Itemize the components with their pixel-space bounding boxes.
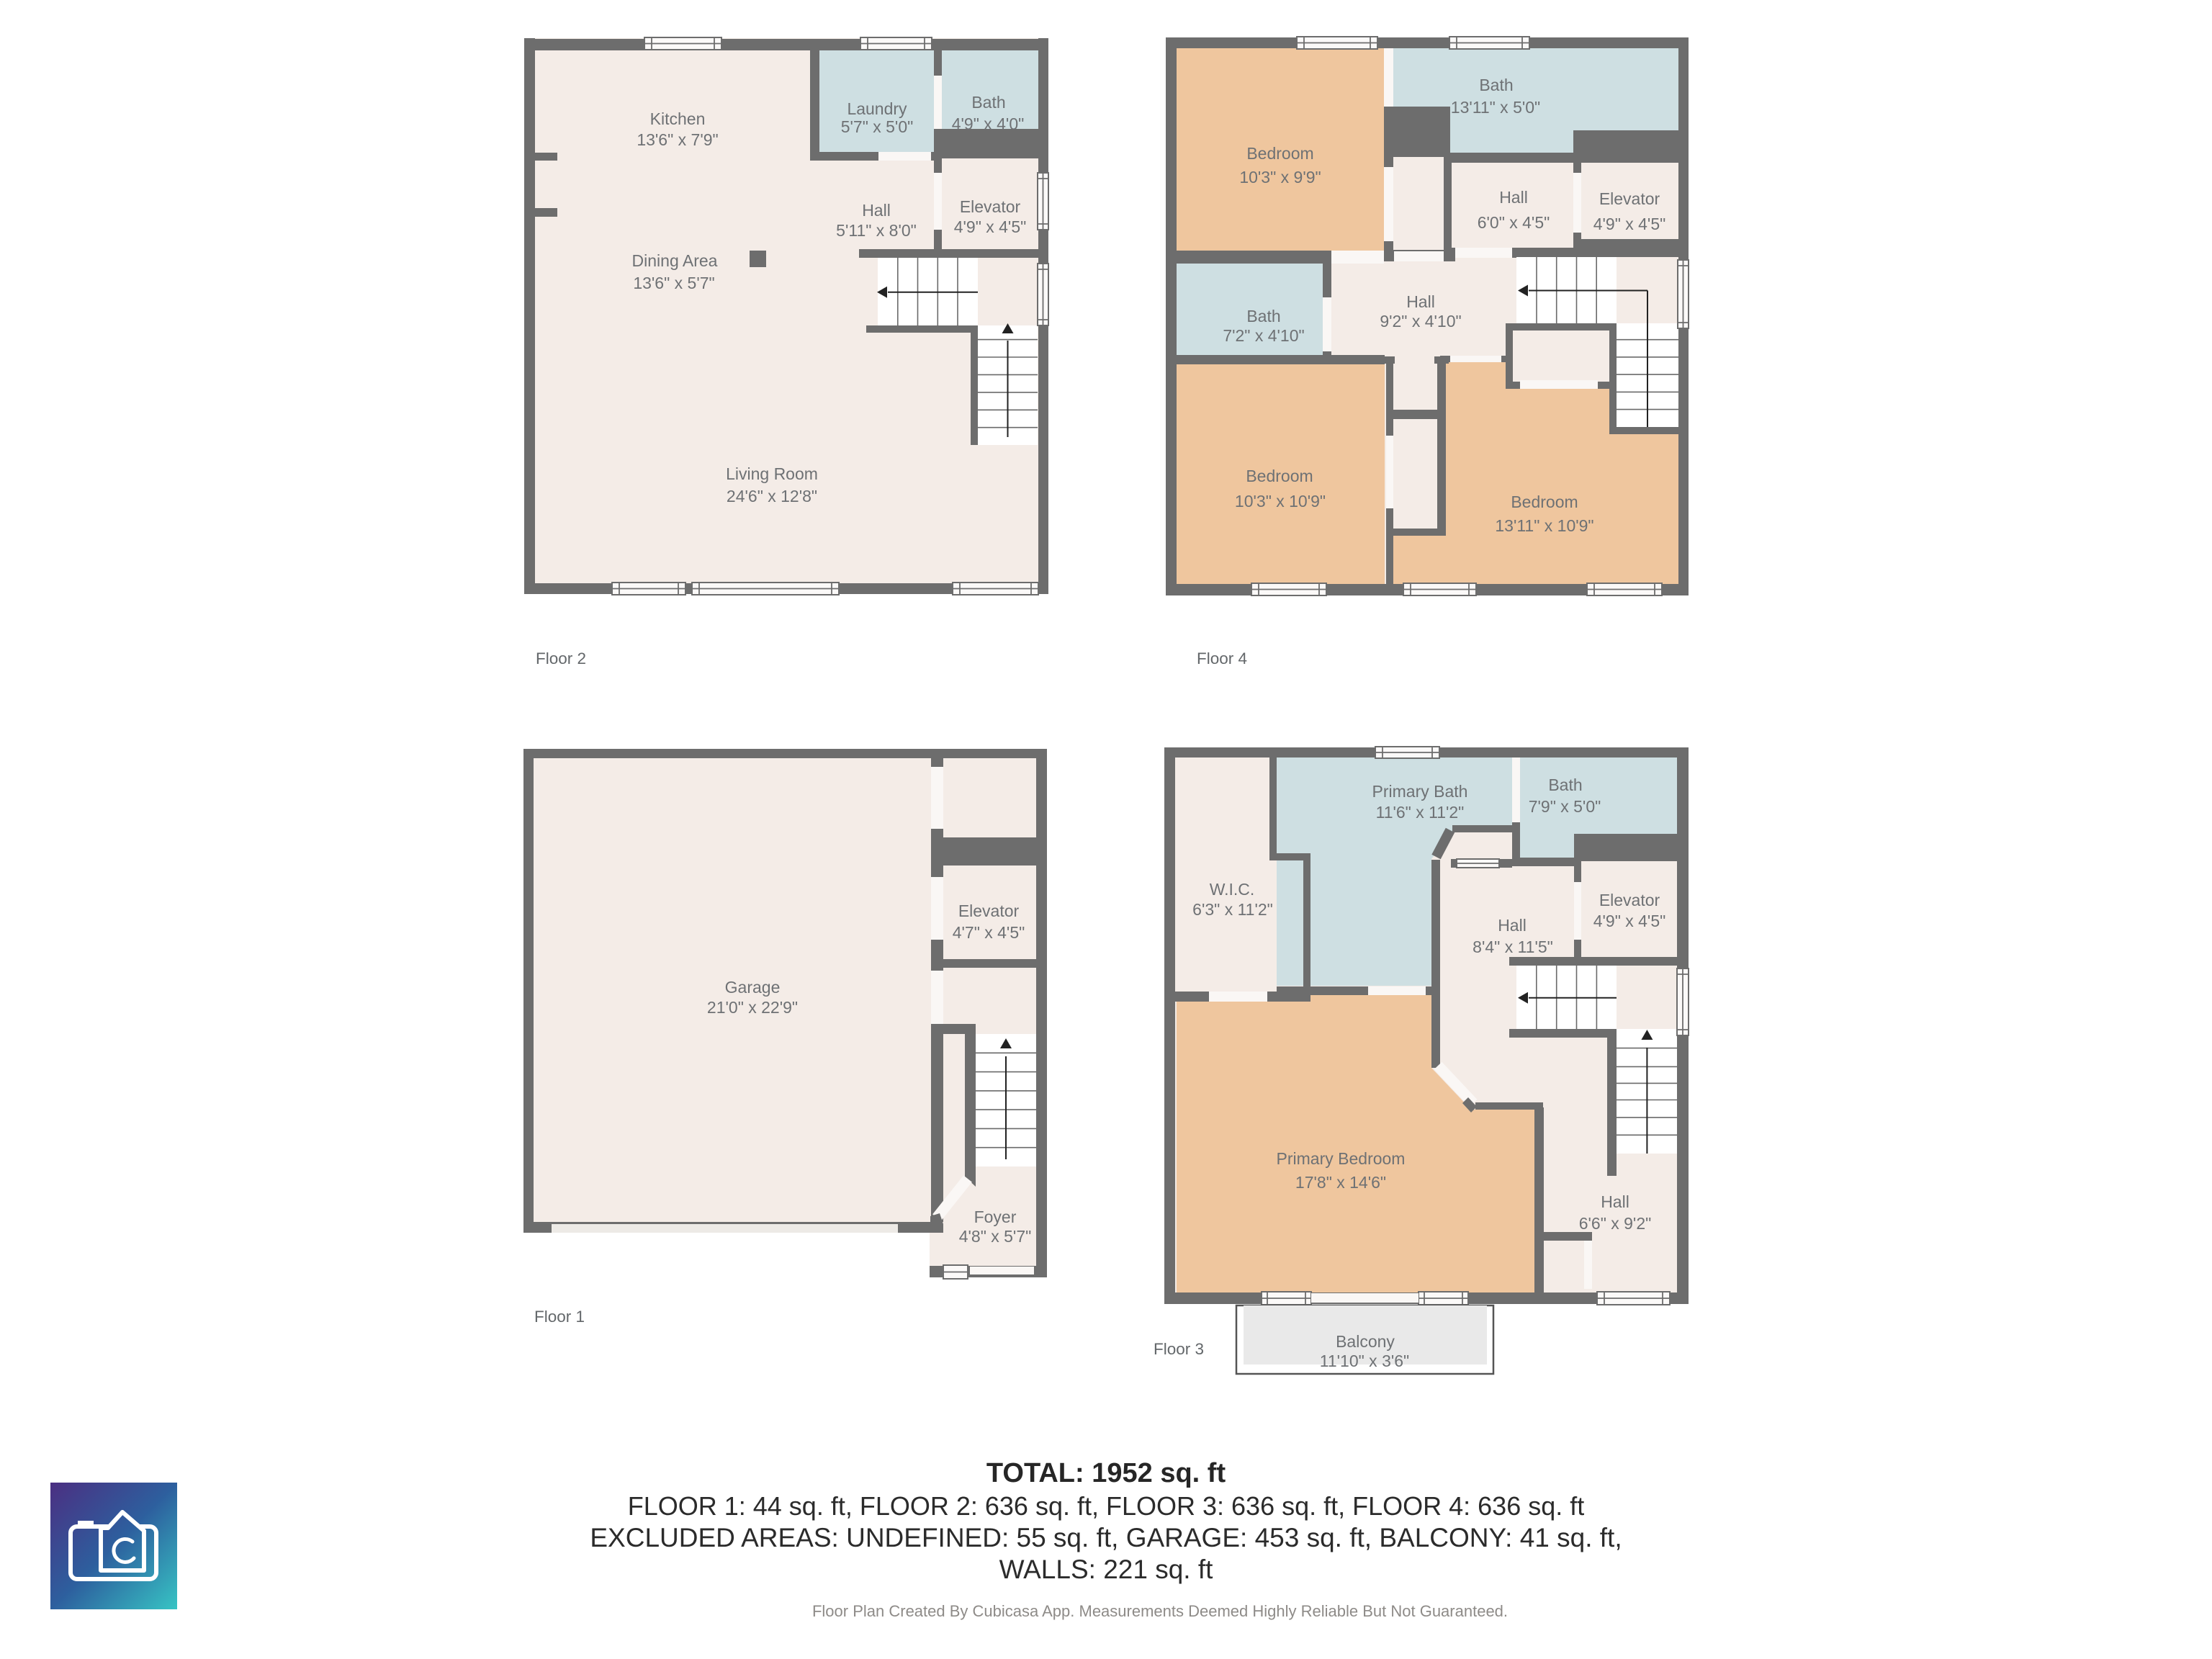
svg-text:5'7" x 5'0": 5'7" x 5'0" bbox=[841, 117, 914, 136]
svg-text:4'9" x 4'0": 4'9" x 4'0" bbox=[952, 114, 1025, 133]
svg-text:13'6" x 5'7": 13'6" x 5'7" bbox=[633, 274, 714, 292]
svg-text:4'8" x 5'7": 4'8" x 5'7" bbox=[959, 1227, 1032, 1246]
svg-text:Bath: Bath bbox=[1246, 307, 1280, 325]
svg-text:Elevator: Elevator bbox=[1599, 189, 1660, 208]
svg-text:W.I.C.: W.I.C. bbox=[1210, 880, 1255, 899]
svg-text:Hall: Hall bbox=[862, 201, 891, 220]
svg-text:4'7" x 4'5": 4'7" x 4'5" bbox=[953, 923, 1025, 942]
svg-text:10'3" x 10'9": 10'3" x 10'9" bbox=[1235, 492, 1326, 511]
svg-text:24'6" x 12'8": 24'6" x 12'8" bbox=[727, 487, 817, 505]
svg-text:Hall: Hall bbox=[1499, 188, 1528, 207]
svg-text:FLOOR 1: 44 sq. ft, FLOOR 2: 6: FLOOR 1: 44 sq. ft, FLOOR 2: 636 sq. ft,… bbox=[628, 1491, 1585, 1521]
svg-text:6'6" x 9'2": 6'6" x 9'2" bbox=[1579, 1214, 1652, 1233]
svg-text:Bedroom: Bedroom bbox=[1511, 493, 1578, 511]
svg-text:Garage: Garage bbox=[725, 978, 781, 997]
svg-text:Floor 3: Floor 3 bbox=[1154, 1340, 1204, 1358]
svg-text:10'3" x 9'9": 10'3" x 9'9" bbox=[1239, 168, 1321, 186]
svg-text:7'2" x 4'10": 7'2" x 4'10" bbox=[1223, 326, 1304, 345]
svg-text:Hall: Hall bbox=[1498, 916, 1527, 935]
svg-text:5'11" x 8'0": 5'11" x 8'0" bbox=[836, 221, 917, 240]
svg-text:13'6" x 7'9": 13'6" x 7'9" bbox=[637, 130, 718, 149]
svg-text:Living Room: Living Room bbox=[726, 464, 818, 483]
svg-text:WALLS: 221 sq. ft: WALLS: 221 sq. ft bbox=[999, 1555, 1214, 1584]
svg-text:4'9" x 4'5": 4'9" x 4'5" bbox=[954, 217, 1027, 236]
svg-text:8'4" x 11'5": 8'4" x 11'5" bbox=[1473, 938, 1553, 956]
svg-text:4'9" x 4'5": 4'9" x 4'5" bbox=[1593, 215, 1666, 233]
svg-text:Primary Bath: Primary Bath bbox=[1372, 782, 1468, 801]
svg-text:Bedroom: Bedroom bbox=[1246, 467, 1313, 485]
svg-text:9'2" x 4'10": 9'2" x 4'10" bbox=[1380, 312, 1461, 331]
svg-text:Floor 4: Floor 4 bbox=[1197, 649, 1247, 667]
svg-text:Laundry: Laundry bbox=[847, 99, 907, 118]
svg-text:TOTAL: 1952 sq. ft: TOTAL: 1952 sq. ft bbox=[986, 1458, 1226, 1488]
svg-text:21'0" x 22'9": 21'0" x 22'9" bbox=[707, 998, 798, 1017]
svg-text:6'3" x 11'2": 6'3" x 11'2" bbox=[1192, 900, 1273, 919]
svg-text:Floor 1: Floor 1 bbox=[534, 1308, 585, 1326]
svg-text:Foyer: Foyer bbox=[974, 1208, 1017, 1226]
svg-text:Dining Area: Dining Area bbox=[632, 251, 718, 270]
svg-text:Kitchen: Kitchen bbox=[650, 109, 706, 128]
svg-text:11'10" x 3'6": 11'10" x 3'6" bbox=[1320, 1352, 1409, 1370]
svg-text:Floor Plan Created By Cubicasa: Floor Plan Created By Cubicasa App. Meas… bbox=[812, 1602, 1508, 1620]
svg-text:EXCLUDED AREAS: UNDEFINED: 55: EXCLUDED AREAS: UNDEFINED: 55 sq. ft, GA… bbox=[590, 1523, 1622, 1552]
svg-text:Bath: Bath bbox=[1479, 76, 1513, 94]
svg-text:Elevator: Elevator bbox=[1599, 891, 1660, 909]
svg-text:Elevator: Elevator bbox=[960, 197, 1021, 216]
svg-text:Bath: Bath bbox=[1548, 775, 1582, 794]
svg-text:6'0" x 4'5": 6'0" x 4'5" bbox=[1478, 213, 1550, 232]
svg-text:Hall: Hall bbox=[1406, 292, 1435, 311]
svg-text:Bath: Bath bbox=[971, 93, 1005, 112]
svg-text:17'8" x 14'6": 17'8" x 14'6" bbox=[1295, 1173, 1386, 1192]
svg-text:Hall: Hall bbox=[1601, 1192, 1629, 1211]
svg-text:Elevator: Elevator bbox=[958, 902, 1020, 920]
svg-text:Balcony: Balcony bbox=[1336, 1332, 1395, 1351]
svg-text:13'11" x 5'0": 13'11" x 5'0" bbox=[1451, 98, 1540, 117]
svg-text:11'6" x 11'2": 11'6" x 11'2" bbox=[1376, 803, 1465, 822]
svg-text:4'9" x 4'5": 4'9" x 4'5" bbox=[1593, 912, 1666, 930]
svg-text:Floor 2: Floor 2 bbox=[536, 649, 586, 667]
svg-text:13'11" x 10'9": 13'11" x 10'9" bbox=[1495, 516, 1593, 535]
svg-text:Primary Bedroom: Primary Bedroom bbox=[1277, 1149, 1406, 1168]
svg-text:Bedroom: Bedroom bbox=[1246, 144, 1313, 163]
svg-text:7'9" x 5'0": 7'9" x 5'0" bbox=[1529, 797, 1601, 816]
